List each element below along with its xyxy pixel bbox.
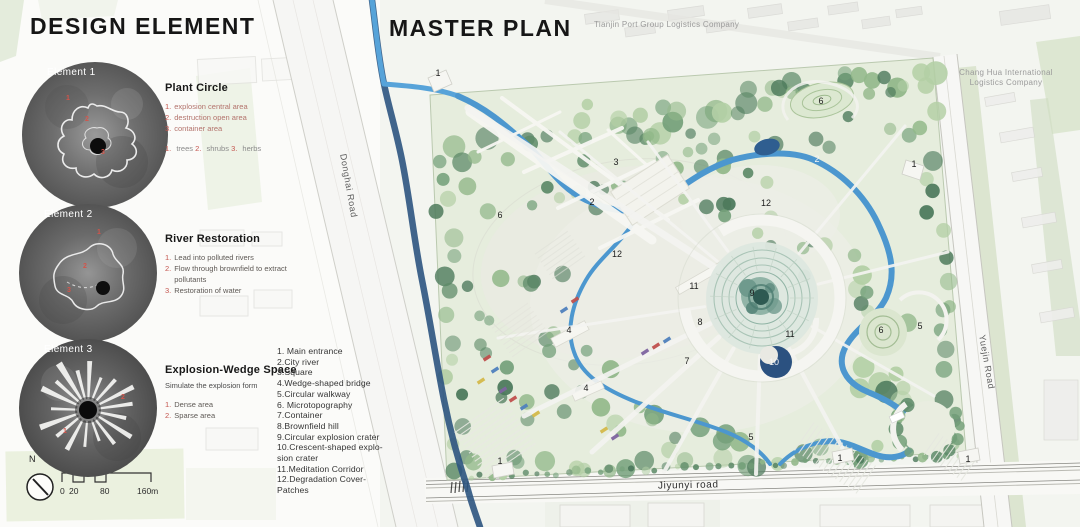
element-list-item: 1.explosion central area	[165, 101, 293, 112]
legend-line: 3.Square	[277, 367, 383, 378]
plan-marker-9: 9	[749, 288, 754, 298]
legend-line: 7.Container	[277, 410, 383, 421]
design-board: DESIGN ELEMENT MASTER PLAN Tianjin Port …	[0, 0, 1080, 527]
element-list-item: 2.Flow through brownfield to extract pol…	[165, 263, 289, 285]
element-1-description: Plant Circle 1.explosion central area2.d…	[165, 82, 293, 154]
element-list-item: 1.Lead into polluted rivers	[165, 252, 289, 263]
legend-line: 2.City river	[277, 357, 383, 368]
road-label-jiyunyi: Jiyunyi road	[658, 479, 719, 491]
plan-marker-6: 6	[878, 325, 883, 335]
scale-tick: 20	[69, 486, 78, 496]
legend-line: Patches	[277, 485, 383, 496]
element-1-title: Plant Circle	[165, 82, 293, 94]
legend-line: 1. Main entrance	[277, 346, 383, 357]
plan-marker-11: 11	[689, 281, 698, 291]
plan-marker-3: 3	[613, 157, 618, 167]
element-2-diagram: 1 2 3 Element 2	[19, 204, 157, 342]
north-label: N	[29, 454, 36, 464]
element-2-badge: Element 2	[44, 209, 93, 220]
plan-marker-12: 12	[761, 198, 771, 208]
plan-marker-4: 4	[583, 383, 588, 393]
element-1-note: 1. trees 2. shrubs 3. herbs	[165, 144, 293, 154]
plan-marker-1: 1	[837, 453, 842, 463]
plan-marker-1: 1	[497, 456, 502, 466]
company-label-right: Chang Hua International Logistics Compan…	[948, 68, 1064, 88]
element-3-badge: Element 3	[44, 344, 93, 355]
legend-line: 9.Circular explosion crater	[277, 432, 383, 443]
central-crater	[706, 242, 818, 354]
legend-line: 12.Degradation Cover-	[277, 474, 383, 485]
plan-marker-12: 12	[612, 249, 622, 259]
plan-marker-2: 2	[814, 154, 819, 164]
scale-tick: 80	[100, 486, 109, 496]
scale-tick: 0	[60, 486, 65, 496]
legend-line: 5.Circular walkway	[277, 389, 383, 400]
svg-text:1: 1	[66, 95, 70, 102]
master-plan-title: MASTER PLAN	[389, 15, 572, 42]
element-1-diagram: 1 2 3 Element 1	[22, 62, 168, 208]
svg-text:2: 2	[83, 263, 87, 270]
plan-marker-10: 10	[769, 357, 779, 367]
element-1-badge: Element 1	[47, 67, 96, 78]
plan-marker-4: 4	[566, 325, 571, 335]
svg-text:3: 3	[67, 287, 71, 294]
north-compass-icon	[27, 474, 53, 500]
legend-line: 4.Wedge-shaped bridge	[277, 378, 383, 389]
plan-marker-6: 6	[818, 96, 823, 106]
svg-text:3: 3	[101, 149, 105, 156]
plan-marker-1: 1	[435, 68, 440, 78]
plan-marker-11: 11	[785, 329, 794, 339]
element-2-title: River Restoration	[165, 233, 289, 245]
plan-marker-5: 5	[917, 321, 922, 331]
plan-legend: 1. Main entrance2.City river3.Square4.We…	[277, 346, 383, 496]
svg-text:1: 1	[63, 428, 67, 435]
plan-marker-6: 6	[497, 210, 502, 220]
svg-text:1: 1	[97, 229, 101, 236]
plan-marker-2: 2	[589, 197, 594, 207]
plan-marker-5: 5	[748, 432, 753, 442]
svg-text:2: 2	[121, 394, 125, 401]
plan-marker-8: 8	[697, 317, 702, 327]
company-label-top: Tianjin Port Group Logistics Company	[594, 20, 774, 29]
plan-marker-1: 1	[965, 454, 970, 464]
svg-text:2: 2	[85, 116, 89, 123]
element-list-item: 3.container area	[165, 123, 293, 134]
legend-line: 10.Crescent-shaped explo-	[277, 442, 383, 453]
scale-tick: 160m	[137, 486, 158, 496]
legend-line: sion crater	[277, 453, 383, 464]
element-list-item: 3.Restoration of water	[165, 285, 289, 296]
legend-line: 8.Brownfield hill	[277, 421, 383, 432]
legend-line: 6. Microtopography	[277, 400, 383, 411]
legend-line: 11.Meditation Corridor	[277, 464, 383, 475]
element-2-description: River Restoration 1.Lead into polluted r…	[165, 233, 289, 296]
design-element-title: DESIGN ELEMENT	[30, 13, 255, 40]
element-list-item: 2.destruction open area	[165, 112, 293, 123]
plan-marker-7: 7	[684, 356, 689, 366]
element-3-diagram: 1 2 Element 3	[19, 339, 157, 477]
plan-marker-1: 1	[911, 159, 916, 169]
